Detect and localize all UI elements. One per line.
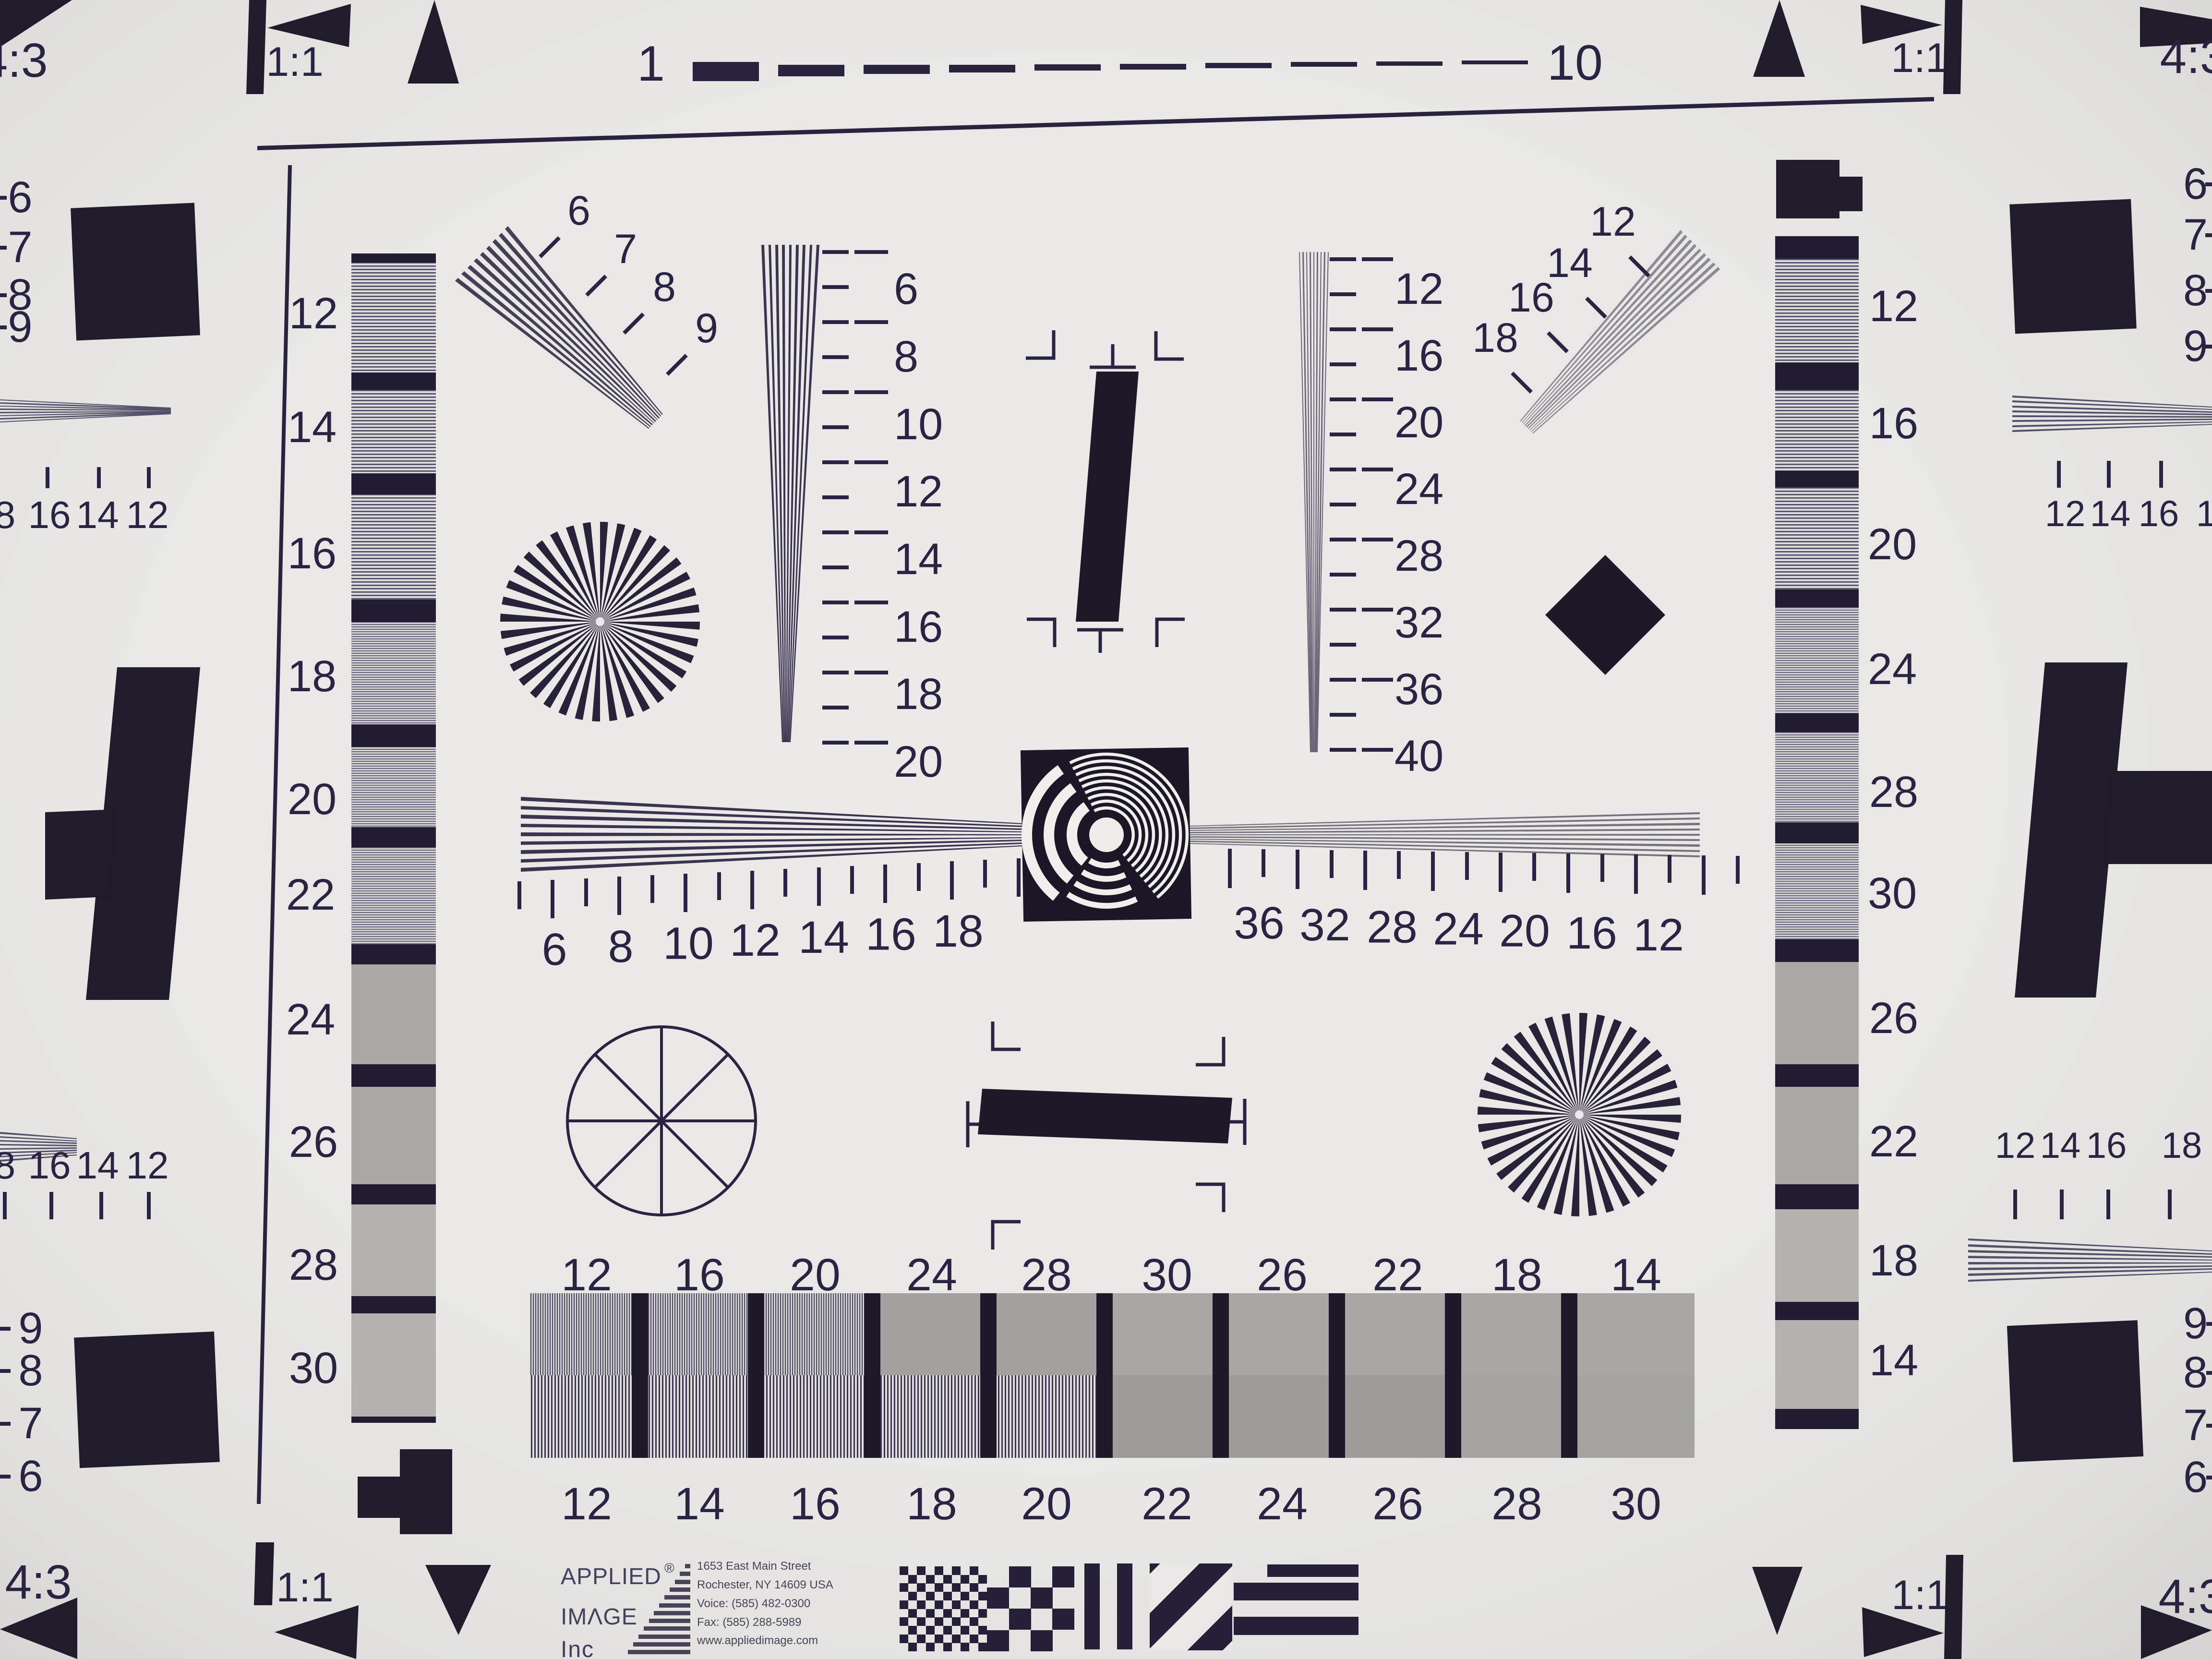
- svg-text:24: 24: [1433, 903, 1484, 954]
- svg-text:12: 12: [1995, 1125, 2036, 1166]
- svg-text:12: 12: [1869, 282, 1918, 331]
- svg-text:8: 8: [894, 332, 918, 381]
- svg-text:18: 18: [1869, 1236, 1918, 1285]
- svg-text:26: 26: [1869, 994, 1918, 1043]
- svg-text:7: 7: [614, 226, 637, 272]
- svg-text:28: 28: [1395, 531, 1443, 580]
- svg-text:9: 9: [2183, 322, 2208, 371]
- svg-text:12: 12: [561, 1479, 612, 1529]
- svg-text:28: 28: [1869, 768, 1918, 817]
- svg-text:16: 16: [1566, 908, 1617, 959]
- svg-text:6: 6: [8, 173, 32, 222]
- svg-text:6: 6: [542, 924, 567, 975]
- svg-text:16: 16: [2139, 493, 2179, 534]
- svg-text:14: 14: [76, 1144, 119, 1187]
- svg-text:14: 14: [76, 493, 119, 536]
- svg-text:10: 10: [1547, 35, 1603, 91]
- svg-text:Inc: Inc: [561, 1637, 594, 1659]
- svg-text:16: 16: [1869, 399, 1918, 448]
- svg-text:28: 28: [1367, 902, 1418, 952]
- svg-text:16: 16: [1508, 275, 1554, 321]
- svg-text:14: 14: [1611, 1250, 1661, 1300]
- svg-text:8: 8: [2183, 266, 2208, 315]
- svg-text:26: 26: [289, 1118, 338, 1166]
- svg-text:1:1: 1:1: [1891, 1572, 1949, 1618]
- svg-text:4:3: 4:3: [0, 34, 48, 87]
- svg-text:16: 16: [674, 1250, 725, 1300]
- svg-text:24: 24: [286, 995, 335, 1044]
- svg-text:24: 24: [1395, 465, 1443, 514]
- svg-text:10: 10: [894, 400, 943, 449]
- svg-text:7: 7: [2183, 1401, 2208, 1450]
- svg-text:20: 20: [1395, 398, 1443, 447]
- svg-text:16: 16: [288, 529, 337, 578]
- svg-text:16: 16: [28, 493, 71, 536]
- svg-text:16: 16: [866, 909, 916, 960]
- svg-text:8: 8: [608, 921, 634, 972]
- svg-text:IMΛGE: IMΛGE: [561, 1604, 637, 1630]
- svg-text:1:1: 1:1: [266, 39, 324, 85]
- svg-text:14: 14: [798, 912, 849, 963]
- svg-text:1653 East Main Street: 1653 East Main Street: [697, 1560, 811, 1573]
- svg-text:1: 1: [637, 36, 665, 92]
- svg-text:20: 20: [1021, 1479, 1072, 1529]
- svg-text:14: 14: [2090, 493, 2131, 534]
- svg-text:16: 16: [2086, 1125, 2127, 1166]
- svg-text:18: 18: [288, 652, 337, 701]
- svg-text:1:1: 1:1: [1891, 35, 1948, 81]
- svg-text:Voice: (585) 482-0300: Voice: (585) 482-0300: [697, 1597, 810, 1610]
- svg-text:28: 28: [1491, 1479, 1542, 1529]
- svg-text:8: 8: [0, 493, 15, 536]
- svg-text:16: 16: [28, 1144, 71, 1187]
- svg-text:12: 12: [1633, 910, 1684, 961]
- svg-text:22: 22: [286, 870, 335, 919]
- svg-text:6: 6: [2183, 1453, 2208, 1502]
- svg-text:12: 12: [894, 467, 943, 516]
- svg-text:22: 22: [1142, 1479, 1192, 1529]
- svg-text:Rochester, NY 14609 USA: Rochester, NY 14609 USA: [697, 1578, 833, 1591]
- svg-text:24: 24: [1868, 645, 1917, 694]
- svg-text:9: 9: [695, 305, 718, 351]
- svg-text:24: 24: [1257, 1479, 1308, 1529]
- svg-text:9: 9: [2183, 1299, 2208, 1348]
- svg-text:18: 18: [1472, 315, 1518, 361]
- svg-text:7: 7: [2183, 210, 2208, 259]
- svg-text:8: 8: [0, 1144, 15, 1187]
- svg-text:28: 28: [1021, 1250, 1072, 1300]
- svg-text:30: 30: [1611, 1479, 1661, 1529]
- svg-text:12: 12: [1395, 264, 1443, 313]
- svg-text:8: 8: [18, 1346, 43, 1395]
- svg-text:6: 6: [567, 188, 590, 234]
- svg-text:www.appliedimage.com: www.appliedimage.com: [697, 1634, 818, 1647]
- svg-text:12: 12: [1590, 199, 1636, 245]
- svg-text:20: 20: [790, 1250, 841, 1300]
- svg-text:36: 36: [1395, 665, 1443, 714]
- svg-text:14: 14: [2040, 1125, 2081, 1166]
- svg-text:6: 6: [18, 1452, 43, 1501]
- svg-text:®: ®: [664, 1561, 674, 1575]
- svg-text:12: 12: [289, 289, 338, 338]
- svg-text:9: 9: [18, 1304, 43, 1353]
- svg-text:12: 12: [2045, 493, 2086, 534]
- svg-text:26: 26: [1372, 1479, 1423, 1529]
- svg-text:16: 16: [894, 602, 943, 651]
- svg-text:4:3: 4:3: [5, 1555, 72, 1609]
- svg-text:24: 24: [906, 1250, 957, 1300]
- svg-text:40: 40: [1395, 732, 1443, 781]
- svg-text:14: 14: [894, 535, 943, 584]
- svg-text:4:3: 4:3: [2160, 30, 2212, 84]
- svg-text:26: 26: [1257, 1250, 1308, 1300]
- svg-text:30: 30: [1868, 869, 1917, 918]
- svg-text:18: 18: [906, 1479, 957, 1529]
- svg-text:18: 18: [1491, 1250, 1542, 1300]
- svg-text:8: 8: [2183, 1348, 2208, 1397]
- svg-text:18: 18: [933, 906, 984, 957]
- svg-text:10: 10: [663, 918, 714, 969]
- svg-text:12: 12: [126, 493, 169, 536]
- svg-text:32: 32: [1299, 900, 1350, 950]
- svg-text:14: 14: [674, 1479, 725, 1529]
- svg-text:6: 6: [894, 264, 918, 313]
- svg-text:1: 1: [2196, 493, 2212, 534]
- svg-text:14: 14: [288, 403, 337, 452]
- svg-text:16: 16: [1395, 331, 1443, 380]
- svg-text:16: 16: [790, 1479, 841, 1529]
- svg-text:12: 12: [561, 1250, 612, 1300]
- svg-text:20: 20: [1868, 520, 1917, 569]
- svg-text:22: 22: [1869, 1117, 1918, 1166]
- svg-text:1:1: 1:1: [276, 1564, 334, 1611]
- svg-text:6: 6: [2183, 159, 2208, 208]
- svg-text:36: 36: [1234, 898, 1285, 949]
- svg-text:14: 14: [1869, 1336, 1918, 1385]
- svg-text:Fax: (585) 288-5989: Fax: (585) 288-5989: [697, 1616, 801, 1629]
- svg-text:7: 7: [18, 1399, 43, 1448]
- svg-text:22: 22: [1372, 1250, 1423, 1300]
- svg-text:30: 30: [289, 1344, 338, 1393]
- svg-text:8: 8: [653, 264, 676, 310]
- svg-text:20: 20: [1499, 906, 1550, 957]
- svg-text:20: 20: [894, 737, 943, 786]
- svg-text:32: 32: [1395, 598, 1443, 647]
- svg-text:30: 30: [1142, 1250, 1192, 1300]
- svg-text:18: 18: [894, 670, 943, 719]
- svg-text:7: 7: [8, 223, 32, 272]
- svg-text:28: 28: [289, 1240, 338, 1289]
- svg-text:20: 20: [288, 775, 337, 824]
- svg-text:12: 12: [730, 915, 781, 966]
- svg-text:12: 12: [126, 1144, 169, 1187]
- svg-text:18: 18: [2162, 1125, 2202, 1166]
- svg-text:APPLIED: APPLIED: [561, 1564, 661, 1589]
- svg-text:9: 9: [8, 302, 32, 351]
